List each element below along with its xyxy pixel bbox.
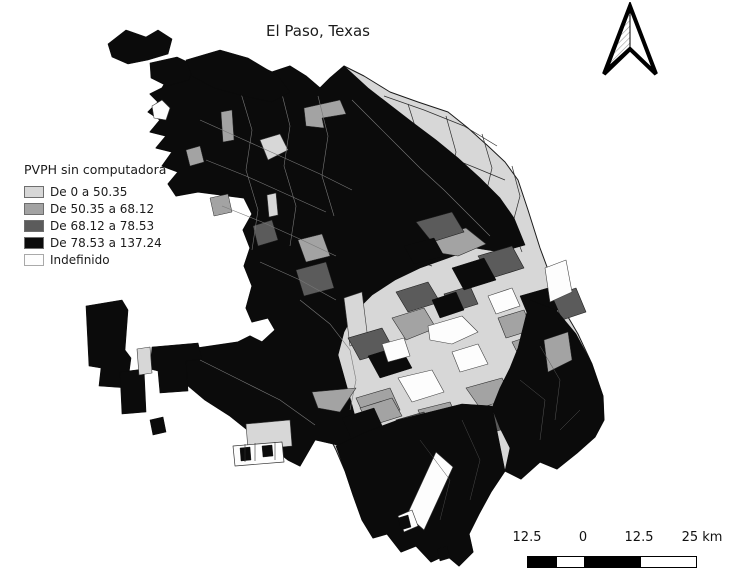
scale-segment	[640, 557, 696, 567]
legend-title: PVPH sin computadora	[24, 162, 194, 177]
legend-swatch	[24, 203, 44, 215]
legend-label: De 68.12 a 78.53	[50, 219, 154, 233]
scale-label: 12.5	[513, 530, 542, 545]
legend-swatch	[24, 220, 44, 232]
map-region	[267, 193, 278, 217]
scale-segment	[584, 557, 640, 567]
map-region	[150, 417, 166, 435]
legend-swatch	[24, 237, 44, 249]
scale-label: 12.5	[625, 530, 654, 545]
map-region	[137, 347, 152, 375]
scale-segment	[556, 557, 584, 567]
legend-row: De 78.53 a 137.24	[24, 234, 194, 251]
legend-swatch	[24, 254, 44, 266]
map-region	[221, 110, 234, 142]
scale-label: 0	[579, 530, 587, 545]
scale-segments	[527, 556, 697, 568]
north-arrow-icon	[597, 2, 663, 82]
legend-row: De 0 a 50.35	[24, 183, 194, 200]
map-title: El Paso, Texas	[266, 22, 370, 40]
legend: PVPH sin computadora De 0 a 50.35 De 50.…	[24, 162, 194, 268]
map-region	[262, 445, 273, 457]
scale-bar: 12.5 0 12.5 25 km	[505, 528, 735, 572]
map-region	[120, 369, 146, 414]
map-layer-west-detached-light	[137, 347, 152, 375]
map-region	[210, 194, 232, 216]
legend-label: De 50.35 a 68.12	[50, 202, 154, 216]
legend-label: De 78.53 a 137.24	[50, 236, 162, 250]
legend-row: Indefinido	[24, 251, 194, 268]
city-map	[0, 0, 742, 586]
map-region	[108, 30, 172, 64]
scale-segment	[528, 557, 556, 567]
map-region	[240, 447, 251, 461]
scale-label: 25 km	[682, 530, 723, 545]
legend-row: De 68.12 a 78.53	[24, 217, 194, 234]
legend-row: De 50.35 a 68.12	[24, 200, 194, 217]
legend-label: Indefinido	[50, 253, 110, 267]
legend-swatch	[24, 186, 44, 198]
legend-label: De 0 a 50.35	[50, 185, 127, 199]
figure: El Paso, Texas PVPH sin computadora De 0…	[0, 0, 742, 586]
